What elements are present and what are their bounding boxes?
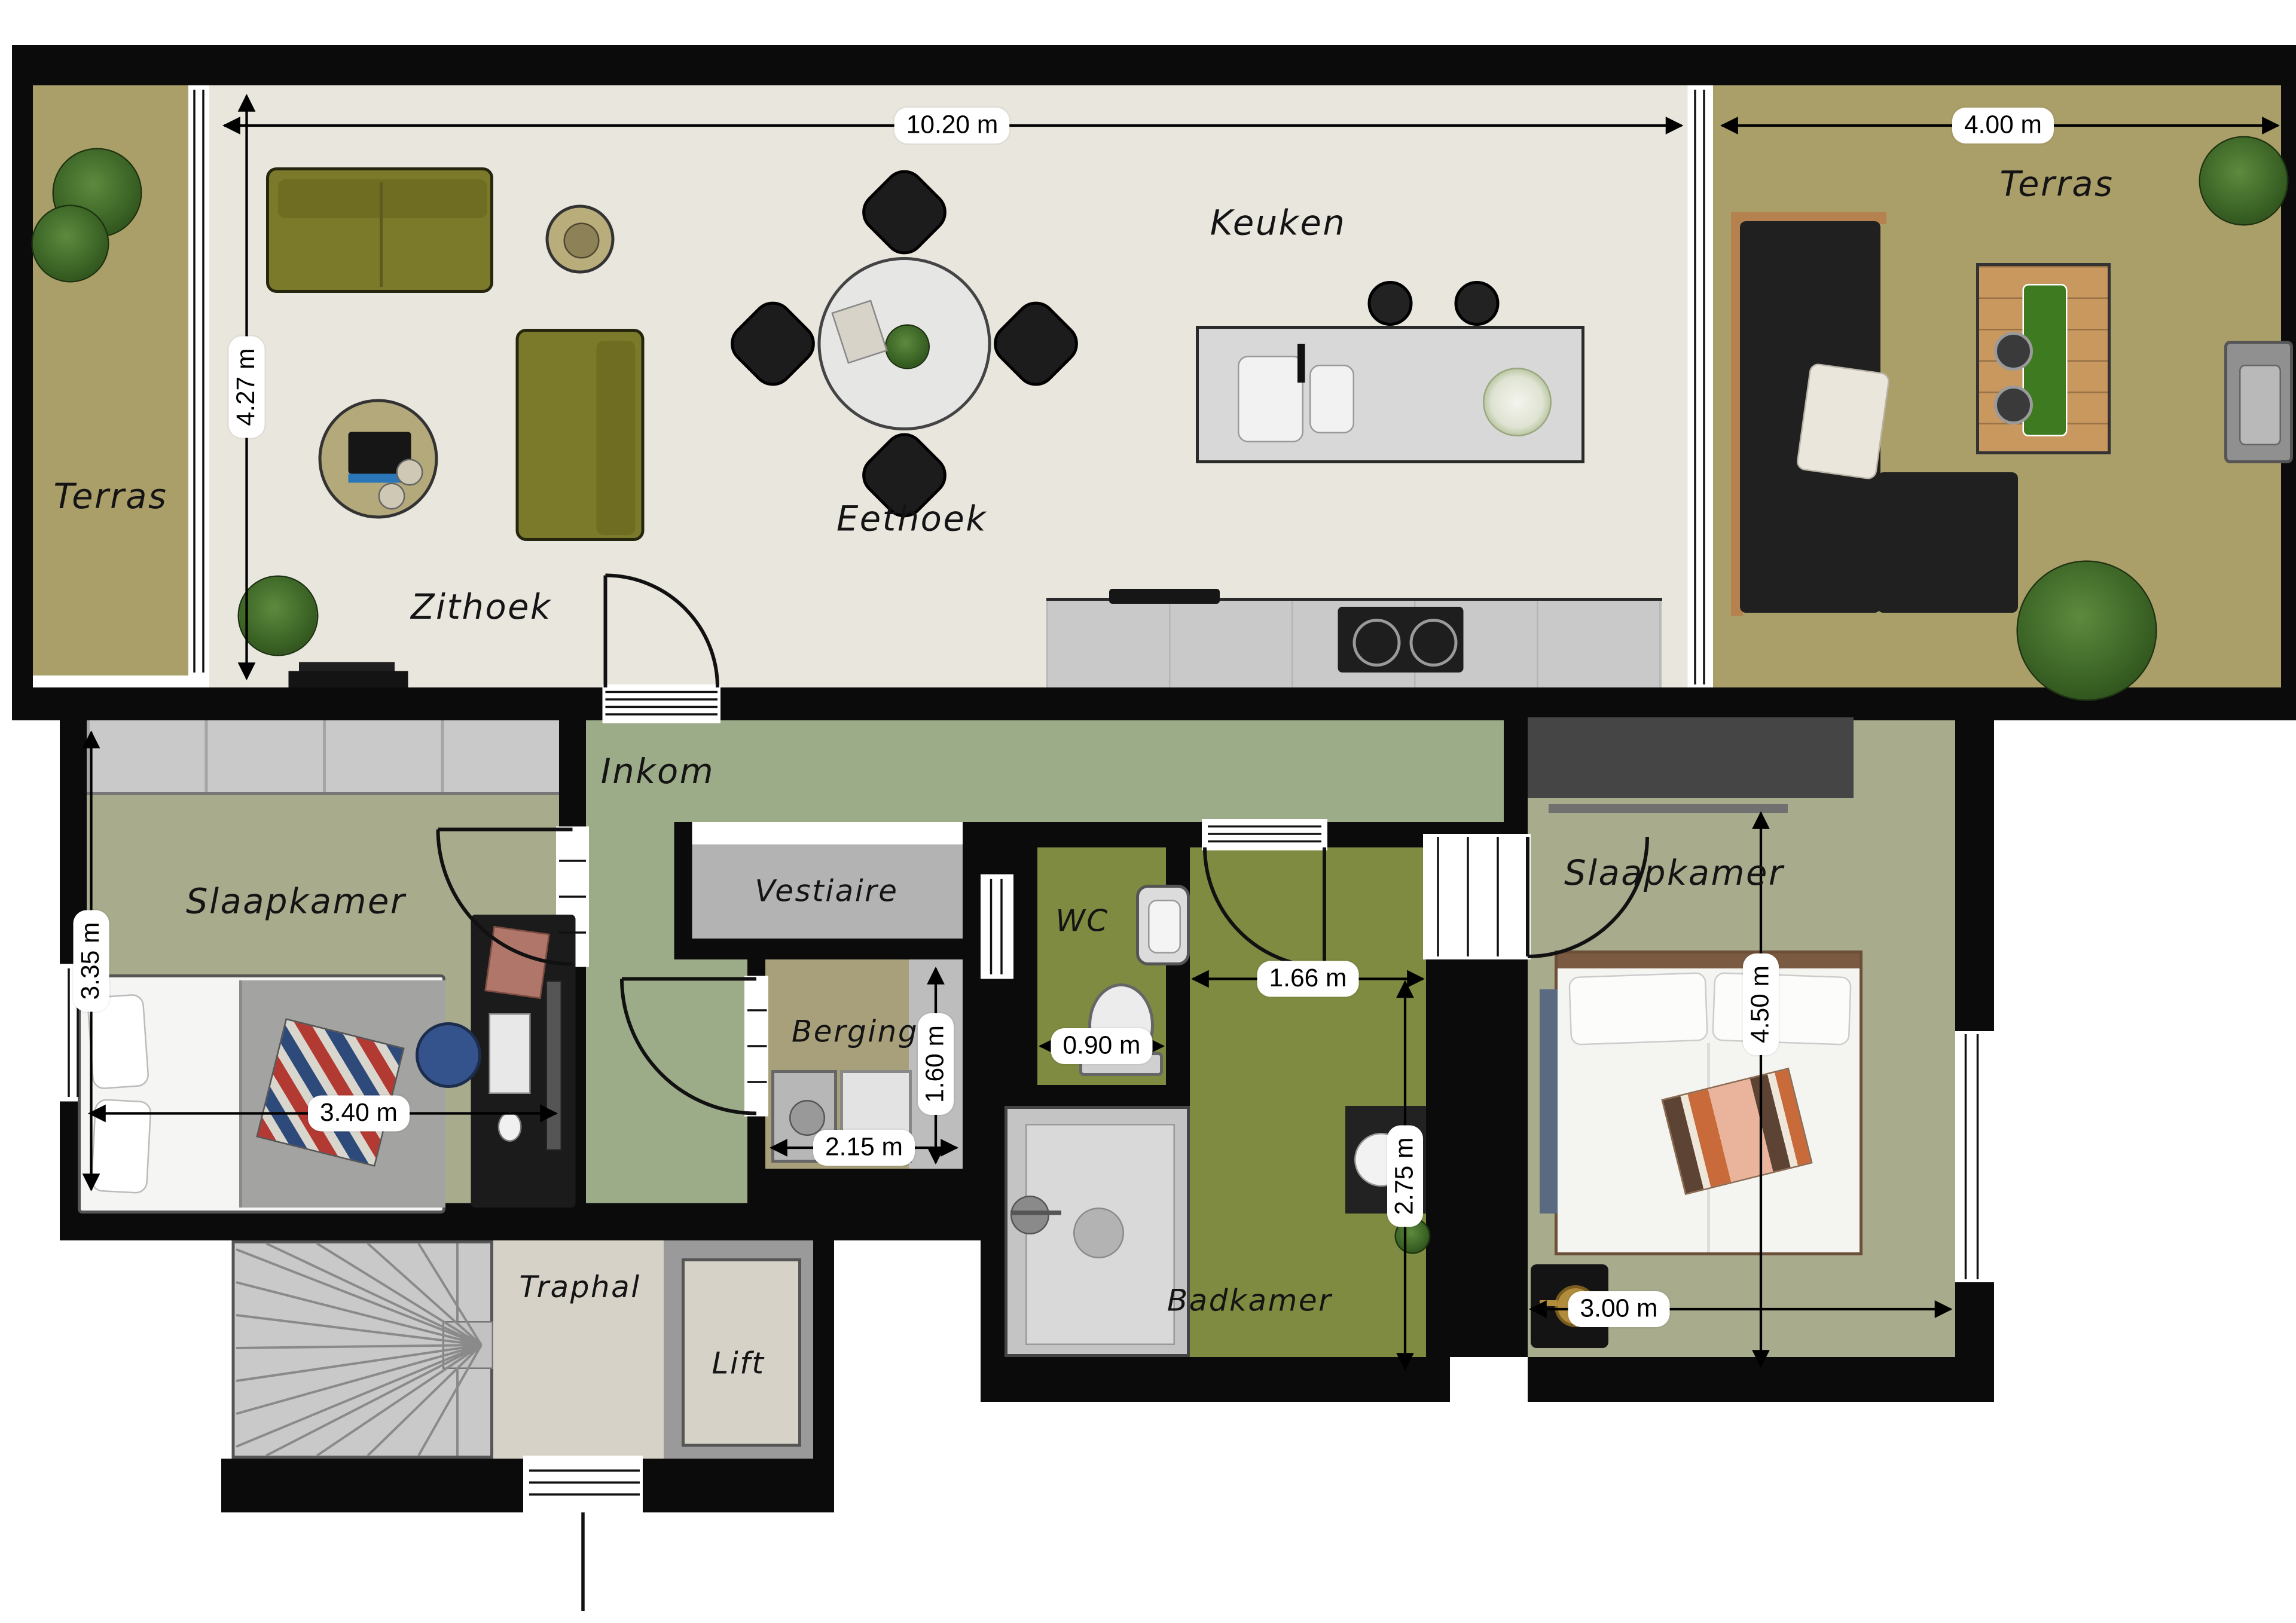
- wc-sink: [1136, 885, 1190, 965]
- dim-terras-right-width: 4.00 m: [1952, 108, 2054, 143]
- faucet-icon: [1297, 344, 1305, 383]
- bush-terrasL-2: [33, 206, 108, 281]
- bed-runner-blue: [1540, 989, 1558, 1214]
- headboard: [1558, 953, 1860, 968]
- candle-tray: [564, 223, 600, 259]
- cooktop-burner-2: [1410, 619, 1458, 667]
- wall-mid-band: [27, 687, 2296, 720]
- wall-top: [27, 45, 2296, 85]
- label-zithoek: Zithoek: [411, 589, 552, 628]
- monitor-icon: [546, 980, 563, 1151]
- wall-stairblock-bottom: [221, 1459, 819, 1512]
- plate-1: [1994, 332, 2033, 371]
- window-wc: [981, 875, 1013, 979]
- dim-badkamer-depth: 2.75 m: [1387, 1126, 1423, 1227]
- room-inkom-corridor-upper: [586, 822, 674, 939]
- stairs-landing: [442, 1321, 493, 1369]
- label-vestiaire: Vestiaire: [755, 873, 899, 909]
- label-eethoek: Eethoek: [836, 501, 987, 540]
- threshold-traphal: [523, 1456, 643, 1515]
- bar-stool-1: [1368, 281, 1413, 326]
- pouf-cup-1: [396, 459, 423, 486]
- label-slaapkamer-right: Slaapkamer: [1564, 855, 1784, 894]
- plant-terrasR-bottom: [2018, 562, 2155, 699]
- outdoor-table: [1976, 263, 2111, 454]
- pouf: [319, 399, 438, 519]
- folded-blanket: [1661, 1068, 1812, 1195]
- label-traphal: Traphal: [519, 1269, 640, 1305]
- dim-living-depth: 4.27 m: [229, 337, 265, 438]
- window-bedroomR: [1955, 1031, 1994, 1282]
- washer-door: [789, 1100, 825, 1136]
- bed-single: [78, 974, 445, 1214]
- notebook-icon: [484, 926, 549, 999]
- sofa-seat-divider: [380, 182, 383, 287]
- sofa-chaise: [516, 329, 645, 541]
- bbq-grill-icon: [2224, 341, 2293, 463]
- label-terras-right: Terras: [2000, 166, 2114, 205]
- dim-living-width: 10.20 m: [894, 108, 1010, 143]
- bed-double: [1555, 950, 1863, 1255]
- shower-arm: [1010, 1211, 1061, 1215]
- dim-berging-depth: 1.60 m: [918, 1013, 954, 1115]
- threshold-berging: [744, 976, 768, 1117]
- label-berging: Berging: [792, 1013, 918, 1049]
- wall-bedroomR-left-top: [1504, 717, 1528, 822]
- wall-wc-top: [981, 822, 1205, 848]
- tv-sideboard: [289, 671, 408, 688]
- wardrobe-rail: [1549, 804, 1788, 813]
- sofa-back-cushion: [597, 341, 636, 535]
- sofa-two-seater: [266, 167, 493, 293]
- label-badkamer: Badkamer: [1167, 1282, 1332, 1318]
- label-keuken: Keuken: [1210, 205, 1347, 244]
- kitchen-island: [1196, 326, 1584, 463]
- magazine: [831, 299, 887, 363]
- label-inkom: Inkom: [601, 753, 715, 792]
- lamp-arm: [1540, 1300, 1558, 1306]
- pillow-left: [1568, 972, 1708, 1046]
- desk-chair: [416, 1022, 481, 1088]
- dim-berging-width: 2.15 m: [813, 1130, 915, 1166]
- outdoor-sofa-foot: [1877, 472, 2018, 613]
- threshold-bedroomR: [1423, 834, 1531, 959]
- dining-table: [818, 257, 991, 430]
- mouse-icon: [498, 1112, 522, 1142]
- sink-basin-small: [1309, 365, 1354, 433]
- wall-bedroomR-bottom: [1528, 1357, 1994, 1402]
- sofa-back-cushions: [278, 179, 487, 218]
- wall-vestiaire-right: [963, 822, 981, 1184]
- shower: [1004, 1106, 1190, 1357]
- label-slaapkamer-left: Slaapkamer: [186, 884, 406, 922]
- cooktop-burner-1: [1353, 619, 1401, 667]
- dim-slaapkamerL-width: 3.40 m: [308, 1096, 410, 1132]
- label-terras-left: Terras: [54, 478, 168, 517]
- plant-living: [239, 577, 317, 655]
- dim-slaapkamerR-depth: 4.50 m: [1743, 953, 1779, 1055]
- window-terrasL-living: [188, 85, 209, 676]
- pillow-right: [1712, 972, 1852, 1046]
- threshold-inkom-hall: [1202, 819, 1327, 851]
- dim-slaapkamerL-depth: 3.35 m: [74, 910, 109, 1012]
- table-centerpiece: [887, 326, 929, 368]
- wc-sink-basin: [1148, 900, 1181, 953]
- kitchen-counter: [1046, 598, 1662, 687]
- desk: [471, 915, 576, 1208]
- wall-left-upper: [12, 45, 33, 720]
- keyboard-icon: [489, 1013, 531, 1094]
- shower-head-icon: [1010, 1196, 1049, 1234]
- wall-vestiaire-bottom: [674, 939, 984, 959]
- flower-bouquet: [1483, 368, 1552, 436]
- outdoor-cushion: [1796, 362, 1891, 480]
- grill-lid: [2239, 365, 2281, 445]
- label-wc: WC: [1055, 903, 1109, 939]
- shower-drain: [1073, 1208, 1124, 1258]
- plate-2: [1994, 386, 2033, 424]
- bar-stool-2: [1455, 281, 1500, 326]
- room-inkom-corridor-lower: [586, 939, 747, 1203]
- room-inkom: [586, 720, 1504, 822]
- sink-basin-large: [1238, 356, 1303, 442]
- dim-slaapkamerR-width: 3.00 m: [1568, 1291, 1670, 1327]
- threshold-living-inkom: [603, 684, 721, 723]
- label-lift: Lift: [712, 1345, 765, 1381]
- pouf-cup-2: [378, 483, 405, 510]
- wardrobe-bedroomL: [87, 720, 559, 795]
- plant-terrasR-top: [2200, 137, 2287, 224]
- floorplan: 10.20 m 4.27 m 4.00 m 3.35 m 3.40 m 2.15…: [0, 0, 2296, 1623]
- wardrobe-bedroomR: [1528, 717, 1854, 798]
- dim-hal-width: 1.66 m: [1257, 961, 1359, 997]
- counter-hood: [1109, 589, 1220, 604]
- wall-bath-bottom: [981, 1357, 1450, 1402]
- pillow-2: [90, 1099, 152, 1194]
- tv-screen: [299, 662, 395, 671]
- dim-wc-width: 0.90 m: [1051, 1028, 1153, 1064]
- side-table: [546, 205, 615, 274]
- window-living-terrasR: [1688, 85, 1714, 688]
